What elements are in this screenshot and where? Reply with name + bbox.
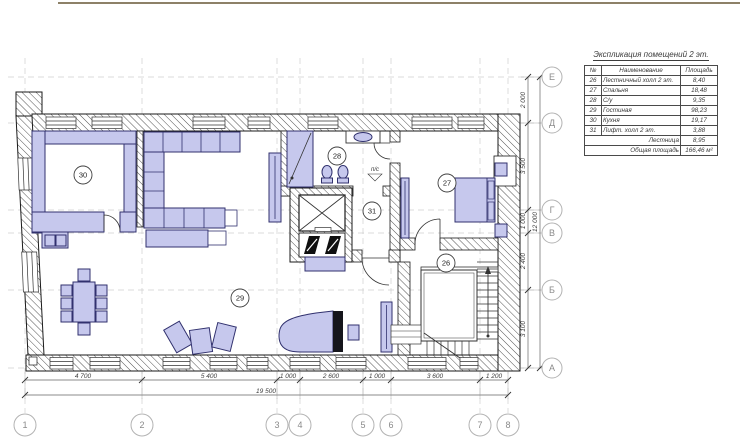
room-num: 26 <box>585 76 602 86</box>
room-number-27: 27 <box>443 179 451 188</box>
axis-5: 5 <box>360 420 365 430</box>
room-area: 19,17 <box>681 116 718 126</box>
table-row: 30 Кухня 19,17 <box>585 116 718 126</box>
chair <box>96 285 107 296</box>
room-number-29: 29 <box>236 294 244 303</box>
table-row: 29 Гостиная 98,23 <box>585 106 718 116</box>
bedroom-bottom-wall-a <box>400 238 415 250</box>
axis-B: Б <box>549 285 555 295</box>
room-number-26: 26 <box>442 259 450 268</box>
chair <box>61 298 72 309</box>
room-area: 98,23 <box>681 106 718 116</box>
stair-landing <box>391 325 421 344</box>
toilet-2 <box>338 166 348 179</box>
elevator-door <box>315 228 331 232</box>
col-header-area: Площадь <box>681 66 718 76</box>
toilet-1 <box>322 166 332 179</box>
room-name: Лифт. холл 2 эт. <box>602 126 681 136</box>
axis-2: 2 <box>139 420 144 430</box>
right-wall <box>498 114 520 371</box>
room-num: 30 <box>585 116 602 126</box>
room-num: 31 <box>585 126 602 136</box>
elevator-shaft <box>290 188 352 262</box>
dim-right-3: 1 000 <box>520 212 527 229</box>
sofa-seat <box>189 328 212 355</box>
axis-4: 4 <box>297 420 302 430</box>
room-name: Гостиная <box>602 106 681 116</box>
stove <box>42 232 68 248</box>
shower-drain <box>291 177 294 180</box>
chair <box>78 269 90 281</box>
room-num: 29 <box>585 106 602 116</box>
floor-plan-page: п/с 26 27 28 29 30 31 <box>0 0 740 444</box>
bench-under-elevator <box>305 257 345 271</box>
dim-right-1: 2 000 <box>520 91 527 109</box>
dim-bottom-5: 1 000 <box>369 373 386 380</box>
room-number-31: 31 <box>368 207 376 216</box>
chair <box>96 311 107 322</box>
summary-label: Общая площадь <box>585 146 681 156</box>
dim-right-4: 2 400 <box>520 252 527 270</box>
kitchen-partition <box>137 131 143 227</box>
dim-bottom-6: 3 600 <box>427 373 444 380</box>
dining-table <box>73 282 95 322</box>
room-area: 3,88 <box>681 126 718 136</box>
table-summary-row: Общая площадь 166,46 м² <box>585 146 718 156</box>
col-header-name: Наименование <box>602 66 681 76</box>
table-row: 27 Спальня 18,48 <box>585 86 718 96</box>
counter-end <box>225 210 237 226</box>
corner-joint <box>29 357 37 365</box>
dim-right-2: 3 500 <box>520 157 527 174</box>
nightstand-top <box>495 163 507 176</box>
summary-area: 8,95 <box>681 136 718 146</box>
summary-area: 166,46 м² <box>681 146 718 156</box>
axis-G: Г <box>550 205 555 215</box>
summary-label: Лестница <box>585 136 681 146</box>
axis-1: 1 <box>22 420 27 430</box>
room-number-28: 28 <box>333 152 341 161</box>
dim-bottom-2: 5 400 <box>201 373 218 380</box>
axis-V: В <box>549 228 555 238</box>
chair <box>61 311 72 322</box>
bottom-windows <box>50 358 478 370</box>
island-end <box>208 231 226 245</box>
table-row: 31 Лифт. холл 2 эт. 3,88 <box>585 126 718 136</box>
room-num: 28 <box>585 96 602 106</box>
dim-bottom-7: 1 200 <box>486 373 503 380</box>
bath-right-wall-a <box>390 131 400 142</box>
col-header-num: № <box>585 66 602 76</box>
stair-void <box>421 270 477 341</box>
room-area: 18,48 <box>681 86 718 96</box>
room-name: Кухня <box>602 116 681 126</box>
table-header-row: № Наименование Площадь <box>585 66 718 76</box>
axis-A: А <box>549 363 555 373</box>
top-windows <box>46 117 484 129</box>
axis-3: 3 <box>274 420 279 430</box>
explication-title: Экспликация помещений 2 эт. <box>593 50 708 61</box>
table-summary-row: Лестница 8,95 <box>585 136 718 146</box>
chair <box>61 285 72 296</box>
hall31-bottom-wall-a <box>352 250 362 262</box>
dim-bottom-total: 19 500 <box>256 388 276 395</box>
table-row: 28 С/у 9,35 <box>585 96 718 106</box>
piano-stool <box>348 325 359 340</box>
axis-bubbles-right: Е Д Г В Б А <box>542 67 562 378</box>
kitchen-island <box>146 230 208 247</box>
page-top-border <box>58 2 740 4</box>
hall31-bottom-wall-b <box>389 250 400 262</box>
room-num: 27 <box>585 86 602 96</box>
axis-bubbles-bottom: 1 2 3 4 5 6 7 8 <box>14 414 519 436</box>
bedroom-bottom-wall-b <box>440 238 498 250</box>
dim-bottom-1: 4 700 <box>75 373 92 380</box>
room-name: Лестничный холл 2 эт. <box>602 76 681 86</box>
room-number-30: 30 <box>79 171 87 180</box>
axis-6: 6 <box>388 420 393 430</box>
chair <box>78 323 90 335</box>
axis-E: Е <box>549 72 555 82</box>
ps-label: п/с <box>371 167 379 173</box>
top-left-pier <box>16 92 42 116</box>
dim-bottom-3: 1 000 <box>280 373 297 380</box>
axis-7: 7 <box>477 420 482 430</box>
axis-D: Д <box>549 118 555 128</box>
room-area: 9,35 <box>681 96 718 106</box>
bath-right-wall-b <box>390 163 400 262</box>
room-area: 8,40 <box>681 76 718 86</box>
explication-table: № Наименование Площадь 26 Лестничный хол… <box>584 65 718 156</box>
chair <box>96 298 107 309</box>
room-name: С/у <box>602 96 681 106</box>
table-row: 26 Лестничный холл 2 эт. 8,40 <box>585 76 718 86</box>
explication-panel: Экспликация помещений 2 эт. № Наименован… <box>584 50 718 156</box>
axis-8: 8 <box>505 420 510 430</box>
dim-bottom-4: 2 600 <box>322 373 340 380</box>
sink <box>354 133 372 142</box>
dim-right-5: 3 100 <box>520 320 527 337</box>
nightstand-bottom <box>495 224 507 237</box>
room-name: Спальня <box>602 86 681 96</box>
piano-keyboard <box>333 311 343 352</box>
dim-right-total: 12 000 <box>532 212 539 232</box>
